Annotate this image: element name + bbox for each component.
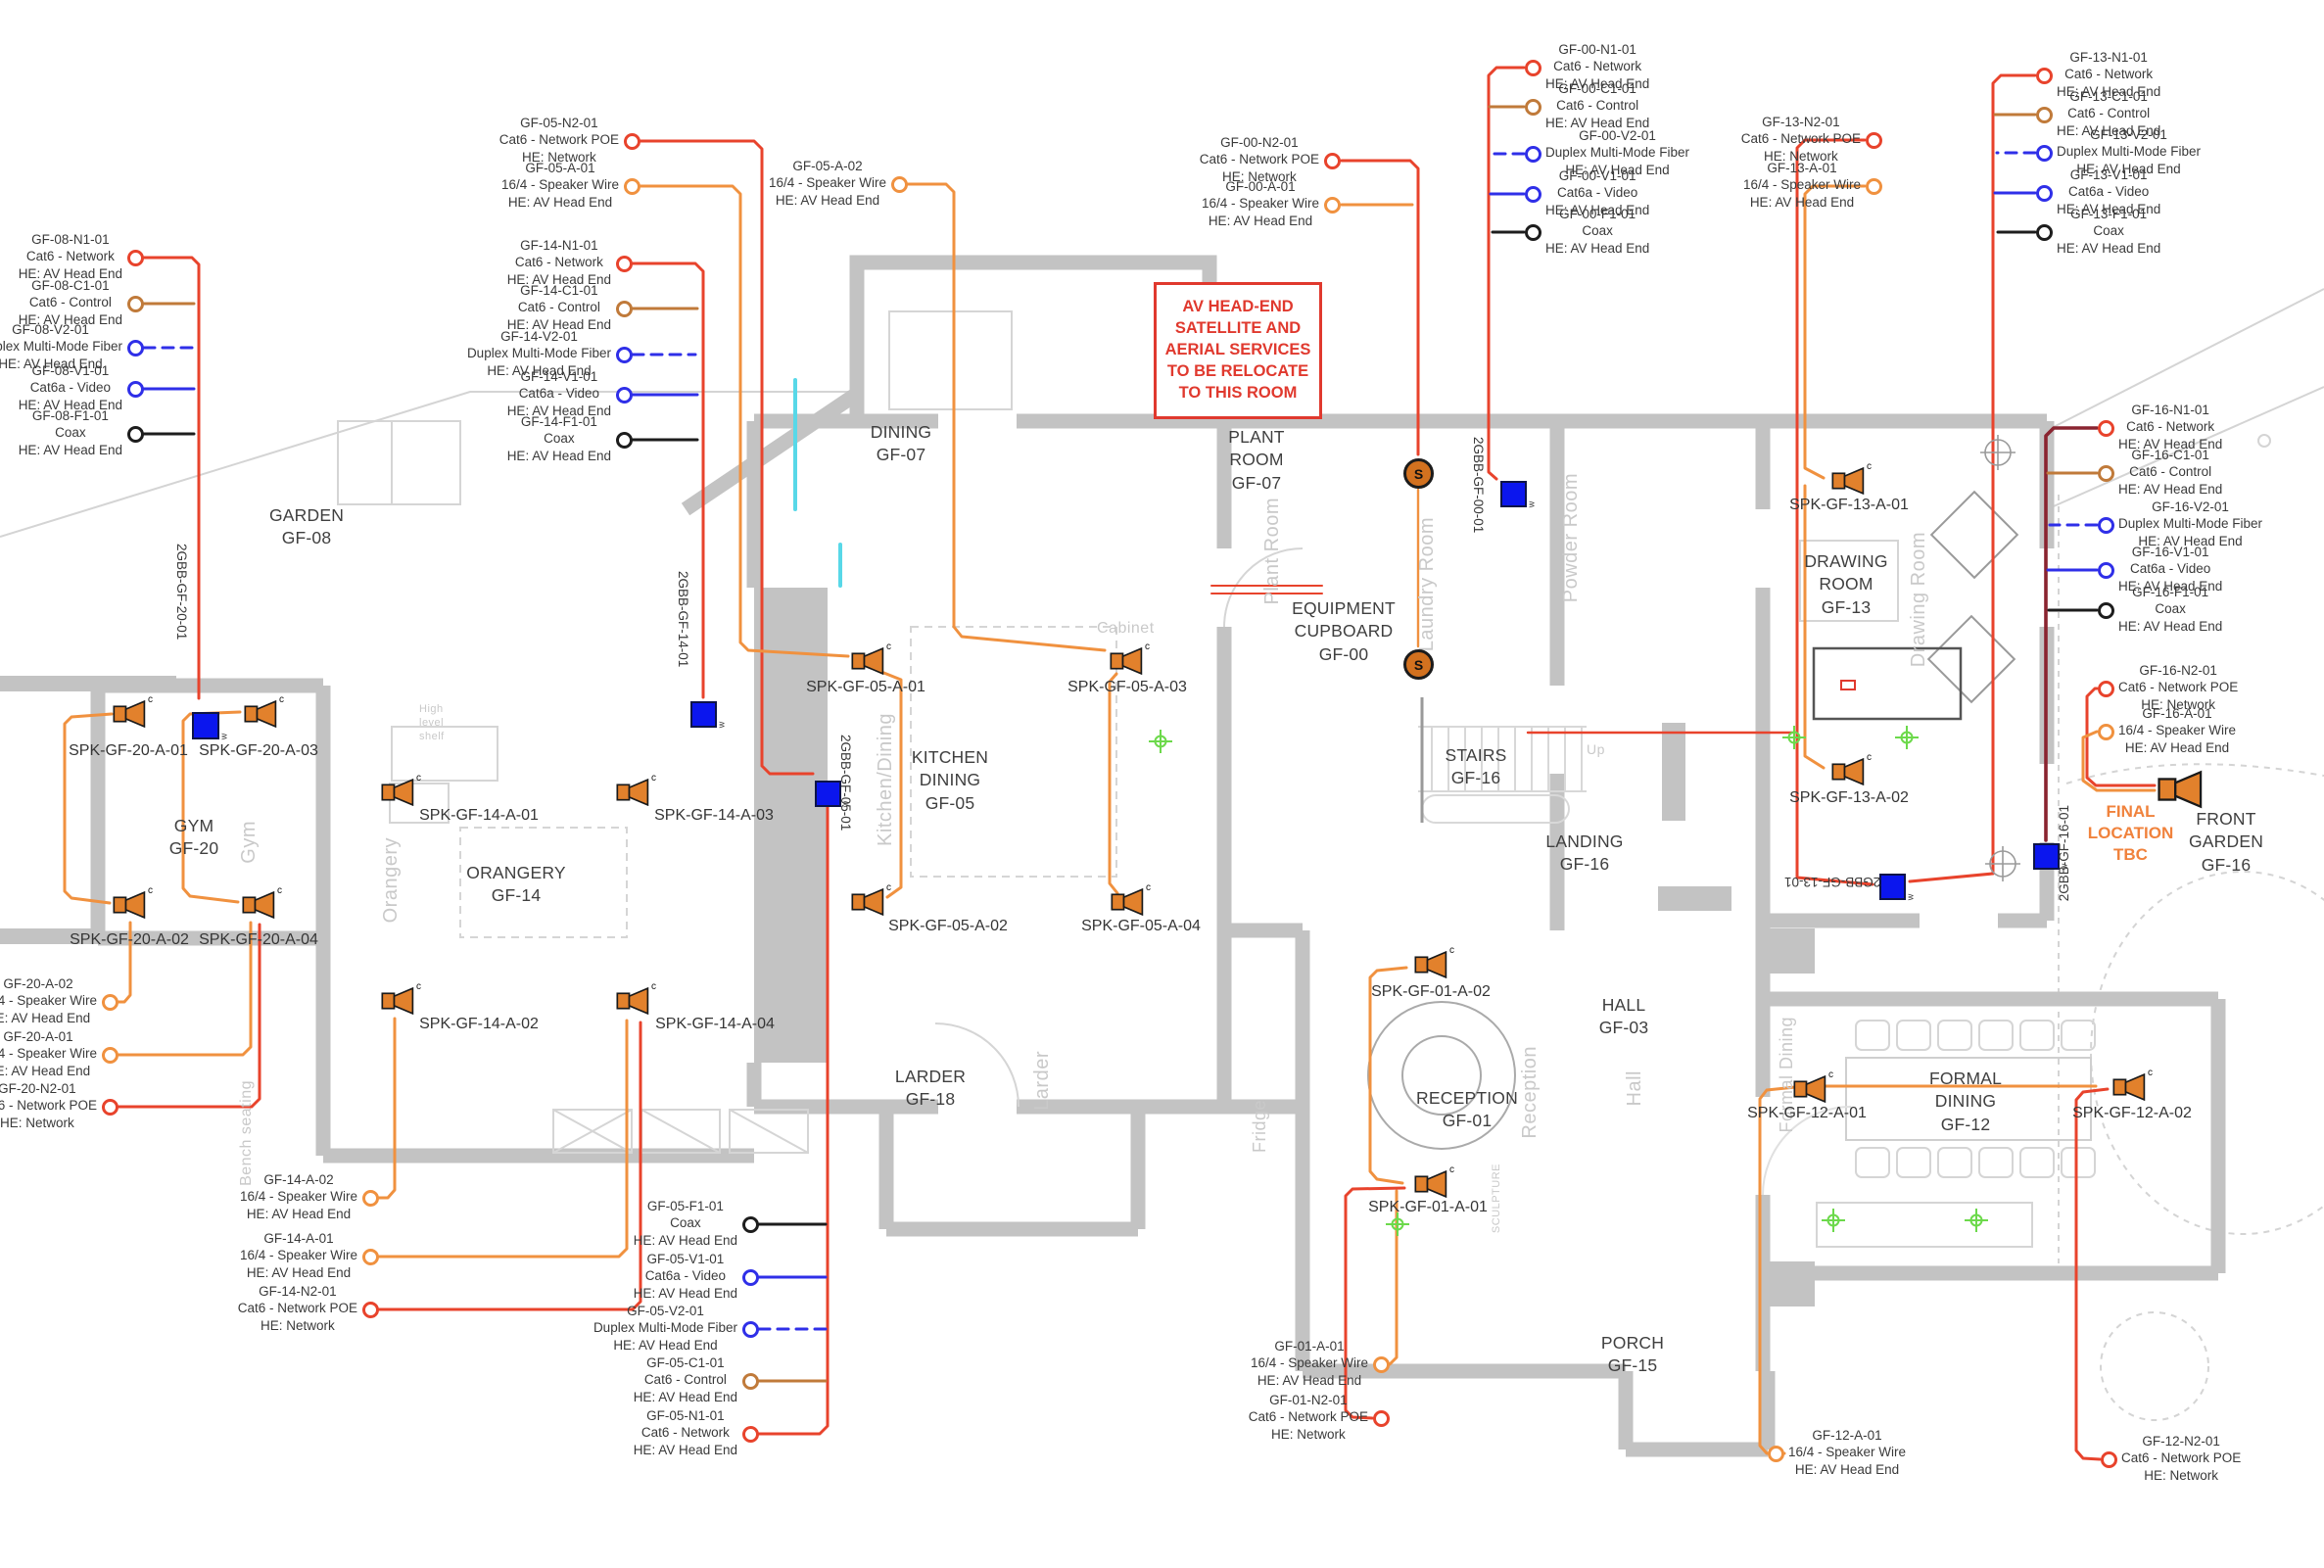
underlay-room-text: Fridge <box>1250 1100 1270 1153</box>
room-label-line: DINING <box>871 421 931 444</box>
cable-callout-cable: Duplex Multi-Mode Fiber <box>1545 144 1689 161</box>
cable-callout-id: GF-05-N1-01 <box>634 1407 737 1424</box>
room-label-line: RECEPTION <box>1416 1087 1518 1110</box>
cable-callout: GF-08-V1-01Cat6a - VideoHE: AV Head End <box>19 362 122 413</box>
cable-connector-node <box>1324 197 1341 214</box>
cable-callout-id: GF-14-C1-01 <box>507 282 611 299</box>
speaker-channel-mark: c <box>148 694 153 705</box>
cable-callout-dest: HE: AV Head End <box>2118 739 2236 756</box>
speaker-icon <box>851 647 884 680</box>
room-label-line: GF-01 <box>1416 1110 1518 1132</box>
cable-callout-cable: Cat6 - Network POE <box>1741 130 1861 147</box>
cable-callout-id: GF-01-N2-01 <box>1249 1392 1368 1408</box>
relocation-note-line: AV HEAD-END <box>1164 297 1311 318</box>
cable-callout-cable: Cat6 - Control <box>507 299 611 315</box>
room-label-line: PLANT <box>1228 426 1284 449</box>
cable-callout-id: GF-05-F1-01 <box>634 1198 737 1214</box>
cable-callout-cable: Cat6 - Network POE <box>1200 151 1319 167</box>
cable-connector-node <box>1866 132 1882 149</box>
room-label-line: GF-05 <box>912 792 988 815</box>
speaker-icon <box>1831 758 1865 790</box>
cable-callout-cable: 16/4 - Speaker Wire <box>1788 1444 1906 1460</box>
cable-callout-id: GF-08-V2-01 <box>0 321 122 338</box>
riser-w-mark: w <box>218 734 228 740</box>
room-label-line: GF-07 <box>871 444 931 466</box>
cable-callout: GF-13-A-0116/4 - Speaker WireHE: AV Head… <box>1743 160 1861 211</box>
speaker-icon <box>2112 1073 2146 1106</box>
cable-callout-id: GF-05-C1-01 <box>634 1354 737 1371</box>
cable-connector-node <box>616 387 633 404</box>
cable-connector-node <box>2098 517 2114 534</box>
room-label: KITCHENDININGGF-05 <box>912 746 988 815</box>
cable-connector-node <box>2098 681 2114 697</box>
cable-callout-dest: HE: AV Head End <box>0 1063 97 1079</box>
room-label-line: GARDEN <box>2189 831 2263 853</box>
cable-callout-id: GF-00-N1-01 <box>1545 41 1649 58</box>
speaker-channel-mark: c <box>1867 752 1872 763</box>
cable-connector-node <box>127 340 144 356</box>
cable-callout-dest: HE: AV Head End <box>240 1264 357 1281</box>
speaker-channel-mark: c <box>416 773 421 784</box>
cable-callout: GF-08-N1-01Cat6 - NetworkHE: AV Head End <box>19 231 122 282</box>
cable-callout-dest: HE: AV Head End <box>634 1389 737 1405</box>
cable-callout-cable: Duplex Multi-Mode Fiber <box>467 345 611 361</box>
underlay-room-text: Orangery <box>380 837 403 923</box>
cable-callout: GF-14-A-0116/4 - Speaker WireHE: AV Head… <box>240 1230 357 1281</box>
speaker-label: SPK-GF-20-A-03 <box>199 742 318 760</box>
riser-w-mark: w <box>1526 501 1536 508</box>
cable-connector-node <box>2036 185 2053 202</box>
cable-connector-node <box>624 178 640 195</box>
underlay-room-text: SCULPTURE <box>1491 1164 1502 1233</box>
room-label: LARDERGF-18 <box>895 1066 966 1112</box>
speaker-label: SPK-GF-14-A-04 <box>655 1016 775 1033</box>
cable-callout-cable: Duplex Multi-Mode Fiber <box>2118 515 2262 532</box>
cable-callout: GF-12-A-0116/4 - Speaker WireHE: AV Head… <box>1788 1427 1906 1478</box>
cable-callout-id: GF-13-A-01 <box>1743 160 1861 176</box>
speaker-icon <box>242 891 275 924</box>
cable-callout-cable: Cat6 - Network POE <box>0 1097 97 1114</box>
room-label-line: KITCHEN <box>912 746 988 769</box>
room-label-line: DRAWING <box>1804 550 1887 573</box>
cable-callout-dest: HE: AV Head End <box>593 1337 737 1354</box>
speaker-channel-mark: c <box>279 694 284 705</box>
room-label-line: GF-07 <box>1228 472 1284 495</box>
room-label-line: DINING <box>912 769 988 791</box>
room-label: ORANGERYGF-14 <box>466 862 565 908</box>
cable-callout-id: GF-12-N2-01 <box>2121 1433 2241 1449</box>
cable-callout-id: GF-14-A-02 <box>240 1171 357 1188</box>
cable-callout: GF-05-A-0216/4 - Speaker WireHE: AV Head… <box>769 158 886 209</box>
cable-callout: GF-01-A-0116/4 - Speaker WireHE: AV Head… <box>1251 1338 1368 1389</box>
cable-callout-cable: Duplex Multi-Mode Fiber <box>0 338 122 355</box>
room-label: EQUIPMENTCUPBOARDGF-00 <box>1292 597 1396 666</box>
cable-callout-dest: HE: Network <box>1249 1426 1368 1443</box>
speaker-channel-mark: c <box>1828 1069 1833 1080</box>
speaker-icon <box>1831 467 1865 499</box>
underlay-room-text: Bench seating <box>238 1080 256 1186</box>
cable-connector-node <box>742 1269 759 1286</box>
speaker-label: SPK-GF-13-A-01 <box>1789 497 1909 514</box>
speaker-label: SPK-GF-12-A-01 <box>1747 1105 1867 1122</box>
cable-connector-node <box>1525 99 1541 116</box>
cable-callout: GF-14-A-0216/4 - Speaker WireHE: AV Head… <box>240 1171 357 1222</box>
cable-callout: GF-08-F1-01CoaxHE: AV Head End <box>19 407 122 458</box>
cable-callout-id: GF-20-A-02 <box>0 975 97 992</box>
cable-callout-dest: HE: Network <box>0 1115 97 1131</box>
speaker-label: SPK-GF-20-A-01 <box>69 742 188 760</box>
cable-connector-node <box>362 1302 379 1318</box>
speaker-icon <box>851 888 884 921</box>
room-label-line: PORCH <box>1601 1332 1664 1354</box>
cable-callout-id: GF-00-N2-01 <box>1200 134 1319 151</box>
speaker-channel-mark: c <box>277 885 282 896</box>
speaker-icon <box>381 987 414 1020</box>
cable-callout-id: GF-13-V1-01 <box>2057 166 2160 183</box>
room-label-line: ROOM <box>1228 449 1284 471</box>
room-label-line: GF-13 <box>1804 596 1887 619</box>
cable-callout-cable: 16/4 - Speaker Wire <box>1202 195 1319 212</box>
room-label: PORCHGF-15 <box>1601 1332 1664 1378</box>
network-riser-box <box>1500 481 1527 507</box>
speaker-channel-mark: c <box>886 882 891 893</box>
speaker-channel-mark: c <box>651 981 656 992</box>
cable-callout: GF-00-A-0116/4 - Speaker WireHE: AV Head… <box>1202 178 1319 229</box>
room-label-line: GF-12 <box>1929 1114 2002 1136</box>
room-label: FORMALDININGGF-12 <box>1929 1068 2002 1136</box>
cable-callout-id: GF-16-F1-01 <box>2118 584 2222 600</box>
room-label-line: GF-15 <box>1601 1354 1664 1377</box>
cable-callout-cable: Cat6 - Network <box>507 254 611 270</box>
cable-callout-dest: HE: AV Head End <box>769 192 886 209</box>
cable-callout-dest: HE: AV Head End <box>19 442 122 458</box>
cable-callout: GF-20-A-0216/4 - Speaker WireHE: AV Head… <box>0 975 97 1026</box>
cable-callout: GF-05-N2-01Cat6 - Network POEHE: Network <box>499 115 619 166</box>
cable-callout-id: GF-13-N2-01 <box>1741 114 1861 130</box>
cable-callout-id: GF-14-N1-01 <box>507 237 611 254</box>
cable-callout-cable: 16/4 - Speaker Wire <box>1251 1354 1368 1371</box>
speaker-channel-mark: c <box>1145 641 1150 652</box>
cable-callout-id: GF-12-A-01 <box>1788 1427 1906 1444</box>
cable-callout-cable: Cat6 - Network POE <box>238 1300 357 1316</box>
room-label: HALLGF-03 <box>1599 994 1649 1040</box>
underlay-room-text: Kitchen/Dining <box>875 713 897 846</box>
underlay-room-text: Cabinet <box>1097 620 1155 638</box>
room-label-line: DINING <box>1929 1090 2002 1113</box>
cable-callout: GF-12-N2-01Cat6 - Network POEHE: Network <box>2121 1433 2241 1484</box>
cable-connector-node <box>127 426 144 443</box>
room-label: PLANTROOMGF-07 <box>1228 426 1284 495</box>
speaker-icon <box>1414 951 1447 983</box>
room-label-line: LANDING <box>1545 831 1623 853</box>
cable-callout-id: GF-08-N1-01 <box>19 231 122 248</box>
cable-callout-id: GF-14-F1-01 <box>507 413 611 430</box>
cable-callout-dest: HE: AV Head End <box>1743 194 1861 211</box>
cable-callout-cable: Cat6 - Network POE <box>2121 1449 2241 1466</box>
cable-callout-cable: Cat6 - Network <box>634 1424 737 1441</box>
cable-callout-id: GF-00-C1-01 <box>1545 80 1649 97</box>
final-location-line: TBC <box>2084 844 2177 866</box>
cable-callout: GF-05-N1-01Cat6 - NetworkHE: AV Head End <box>634 1407 737 1458</box>
cable-callout-dest: HE: Network <box>238 1317 357 1334</box>
speaker-icon <box>244 700 277 733</box>
cable-callout: GF-16-F1-01CoaxHE: AV Head End <box>2118 584 2222 635</box>
cable-callout-cable: 16/4 - Speaker Wire <box>240 1188 357 1205</box>
devices-layer: GARDENGF-08GYMGF-20ORANGERYGF-14KITCHEND… <box>0 0 2324 1568</box>
final-location-note: FINAL LOCATION TBC <box>2084 801 2177 866</box>
speaker-label: SPK-GF-14-A-03 <box>654 807 774 825</box>
cable-callout-id: GF-16-V2-01 <box>2118 499 2262 515</box>
cable-callout-dest: HE: AV Head End <box>2118 481 2222 498</box>
cable-callout-dest: HE: AV Head End <box>501 194 619 211</box>
cable-connector-node <box>2098 420 2114 437</box>
speaker-channel-mark: c <box>148 885 153 896</box>
cable-callout-cable: Coax <box>1545 222 1649 239</box>
cable-connector-node <box>2098 724 2114 740</box>
cable-callout: GF-00-F1-01CoaxHE: AV Head End <box>1545 206 1649 257</box>
cable-callout-cable: Cat6 - Control <box>19 294 122 310</box>
speaker-icon <box>381 779 414 811</box>
room-label: LANDINGGF-16 <box>1545 831 1623 877</box>
riser-label: 2GBB-GF-20-01 <box>174 544 189 640</box>
cable-callout-cable: Coax <box>507 430 611 447</box>
cable-callout-id: GF-01-A-01 <box>1251 1338 1368 1354</box>
cable-connector-node <box>616 301 633 317</box>
cable-callout-id: GF-08-F1-01 <box>19 407 122 424</box>
cable-callout: GF-01-N2-01Cat6 - Network POEHE: Network <box>1249 1392 1368 1443</box>
room-label: DRAWINGROOMGF-13 <box>1804 550 1887 619</box>
cable-connector-node <box>2036 145 2053 162</box>
cable-connector-node <box>742 1426 759 1443</box>
cable-callout-dest: HE: AV Head End <box>1202 213 1319 229</box>
relocation-note-line: TO BE RELOCATE <box>1164 361 1311 383</box>
cable-connector-node <box>891 176 908 193</box>
cable-callout: GF-00-C1-01Cat6 - ControlHE: AV Head End <box>1545 80 1649 131</box>
room-label-line: GF-18 <box>895 1088 966 1111</box>
riser-label: 2GBB-GF-14-01 <box>676 571 690 667</box>
room-label-line: STAIRS <box>1445 744 1506 767</box>
speaker-channel-mark: c <box>2148 1068 2153 1078</box>
cable-callout-id: GF-00-V1-01 <box>1545 167 1649 184</box>
cable-callout: GF-14-C1-01Cat6 - ControlHE: AV Head End <box>507 282 611 333</box>
cable-callout: GF-20-N2-01Cat6 - Network POEHE: Network <box>0 1080 97 1131</box>
cable-callout-cable: Cat6a - Video <box>507 385 611 402</box>
cable-callout-cable: Cat6 - Control <box>2057 105 2160 121</box>
cable-callout-cable: Cat6a - Video <box>2057 183 2160 200</box>
network-riser-box <box>192 712 219 739</box>
cable-connector-node <box>102 994 119 1011</box>
cable-callout-dest: HE: AV Head End <box>240 1206 357 1222</box>
speaker-channel-mark: c <box>651 773 656 784</box>
speaker-label: SPK-GF-01-A-01 <box>1368 1199 1488 1216</box>
underlay-room-text: Powder Room <box>1560 473 1583 602</box>
room-label-line: LARDER <box>895 1066 966 1088</box>
cable-callout-id: GF-08-V1-01 <box>19 362 122 379</box>
cable-callout-cable: Coax <box>2057 222 2160 239</box>
cable-connector-node <box>127 296 144 312</box>
cable-callout-dest: HE: AV Head End <box>2118 618 2222 635</box>
cable-callout-cable: Cat6 - Network POE <box>2118 679 2238 695</box>
cable-callout-dest: HE: AV Head End <box>1251 1372 1368 1389</box>
cable-callout-cable: Cat6 - Network POE <box>499 131 619 148</box>
cable-connector-node <box>1373 1410 1390 1427</box>
cable-callout-cable: Cat6 - Control <box>2118 463 2222 480</box>
cable-callout-id: GF-16-C1-01 <box>2118 447 2222 463</box>
speaker-label: SPK-GF-14-A-02 <box>419 1016 539 1033</box>
cable-callout-dest: HE: Network <box>2121 1467 2241 1484</box>
cable-connector-node <box>1525 224 1541 241</box>
cable-callout-dest: HE: AV Head End <box>634 1285 737 1302</box>
final-location-line: LOCATION <box>2084 823 2177 844</box>
cable-callout-cable: Cat6a - Video <box>2118 560 2222 577</box>
cable-connector-node <box>1768 1446 1784 1462</box>
cable-callout-id: GF-00-F1-01 <box>1545 206 1649 222</box>
cable-callout-cable: 16/4 - Speaker Wire <box>1743 176 1861 193</box>
cable-callout-cable: 16/4 - Speaker Wire <box>0 1045 97 1062</box>
cable-callout-dest: HE: AV Head End <box>1788 1461 1906 1478</box>
speaker-channel-mark: c <box>1449 1164 1454 1175</box>
cable-callout-cable: Cat6 - Network <box>19 248 122 264</box>
satellite-device-icon: S <box>1403 458 1434 489</box>
cable-callout-id: GF-14-N2-01 <box>238 1283 357 1300</box>
cable-callout: GF-16-C1-01Cat6 - ControlHE: AV Head End <box>2118 447 2222 498</box>
cable-connector-node <box>2036 224 2053 241</box>
cable-callout: GF-13-N2-01Cat6 - Network POEHE: Network <box>1741 114 1861 165</box>
speaker-label: SPK-GF-05-A-03 <box>1067 679 1187 696</box>
speaker-label: SPK-GF-13-A-02 <box>1789 789 1909 807</box>
speaker-label: SPK-GF-05-A-01 <box>806 679 925 696</box>
speaker-icon <box>616 779 649 811</box>
room-label-line: GF-16 <box>1545 853 1623 876</box>
cable-connector-node <box>2101 1451 2117 1468</box>
cable-callout-id: GF-16-N1-01 <box>2118 402 2222 418</box>
underlay-room-text: High level shelf <box>419 703 466 743</box>
room-label-line: GF-08 <box>269 527 344 549</box>
room-label-line: ROOM <box>1804 573 1887 595</box>
cable-callout-id: GF-20-A-01 <box>0 1028 97 1045</box>
cable-callout-cable: Coax <box>19 424 122 441</box>
cable-connector-node <box>362 1190 379 1207</box>
cable-callout-id: GF-13-F1-01 <box>2057 206 2160 222</box>
underlay-room-text: Hall <box>1624 1070 1646 1106</box>
underlay-room-text: Reception <box>1519 1046 1541 1139</box>
satellite-device-icon: S <box>1403 649 1434 680</box>
speaker-channel-mark: c <box>1146 882 1151 893</box>
cable-callout-id: GF-00-A-01 <box>1202 178 1319 195</box>
room-label-line: GF-16 <box>1445 767 1506 789</box>
room-label: STAIRSGF-16 <box>1445 744 1506 790</box>
riser-label: 2GBB-GF-05-01 <box>838 735 853 831</box>
cable-callout-cable: Cat6 - Network <box>2118 418 2222 435</box>
cable-callout-cable: Duplex Multi-Mode Fiber <box>2057 143 2201 160</box>
speaker-icon <box>1111 888 1144 921</box>
cable-callout: GF-05-A-0116/4 - Speaker WireHE: AV Head… <box>501 160 619 211</box>
relocation-note-line: TO THIS ROOM <box>1164 383 1311 404</box>
room-label-line: HALL <box>1599 994 1649 1017</box>
cable-callout-id: GF-08-C1-01 <box>19 277 122 294</box>
cable-connector-node <box>616 347 633 363</box>
room-label: GARDENGF-08 <box>269 504 344 550</box>
underlay-room-text: Drawing Room <box>1908 532 1930 667</box>
cable-callout-id: GF-16-A-01 <box>2118 705 2236 722</box>
cable-callout: GF-05-C1-01Cat6 - ControlHE: AV Head End <box>634 1354 737 1405</box>
underlay-room-text: Laundry Room <box>1416 517 1439 651</box>
riser-label: 2GBB-GF-00-01 <box>1471 437 1486 533</box>
cable-connector-node <box>2098 465 2114 482</box>
room-label: DININGGF-07 <box>871 421 931 467</box>
cable-callout-id: GF-13-V2-01 <box>2057 126 2201 143</box>
cable-callout-id: GF-14-V1-01 <box>507 368 611 385</box>
underlay-room-text: Plant Room <box>1261 498 1284 605</box>
underlay-room-text: Up <box>1587 741 1605 757</box>
cable-callout-dest: HE: AV Head End <box>1545 240 1649 257</box>
speaker-icon <box>616 987 649 1020</box>
room-label-line: GF-16 <box>2189 854 2263 877</box>
speaker-label: SPK-GF-12-A-02 <box>2072 1105 2192 1122</box>
cable-callout-id: GF-05-A-02 <box>769 158 886 174</box>
cable-connector-node <box>2098 562 2114 579</box>
speaker-label: SPK-GF-05-A-04 <box>1081 918 1201 935</box>
cable-connector-node <box>1866 178 1882 195</box>
cable-callout: GF-05-V2-01Duplex Multi-Mode FiberHE: AV… <box>593 1303 737 1354</box>
cable-callout-cable: Cat6a - Video <box>1545 184 1649 201</box>
speaker-label: SPK-GF-01-A-02 <box>1371 983 1491 1001</box>
cable-callout-dest: HE: AV Head End <box>634 1232 737 1249</box>
cable-callout-id: GF-14-A-01 <box>240 1230 357 1247</box>
cable-callout-cable: 16/4 - Speaker Wire <box>240 1247 357 1263</box>
cable-connector-node <box>742 1216 759 1233</box>
cable-connector-node <box>2098 602 2114 619</box>
cable-callout: GF-14-F1-01CoaxHE: AV Head End <box>507 413 611 464</box>
cable-connector-node <box>1324 153 1341 169</box>
room-label-line: GYM <box>169 815 219 837</box>
cable-callout-cable: Cat6a - Video <box>634 1267 737 1284</box>
cable-connector-node <box>102 1047 119 1064</box>
speaker-channel-mark: c <box>1867 461 1872 472</box>
cable-callout-dest: HE: AV Head End <box>634 1442 737 1458</box>
cable-connector-node <box>1525 146 1541 163</box>
cable-callout: GF-13-F1-01CoaxHE: AV Head End <box>2057 206 2160 257</box>
cable-connector-node <box>742 1373 759 1390</box>
cable-callout: GF-05-F1-01CoaxHE: AV Head End <box>634 1198 737 1249</box>
relocation-note-line: SATELLITE AND <box>1164 318 1311 340</box>
speaker-label: SPK-GF-20-A-04 <box>199 931 318 949</box>
cable-callout-id: GF-16-N2-01 <box>2118 662 2238 679</box>
riser-label: 2GBB-GF-13-01 <box>1784 875 1880 889</box>
cable-callout-id: GF-05-V2-01 <box>593 1303 737 1319</box>
cable-connector-node <box>362 1249 379 1265</box>
speaker-label: SPK-GF-05-A-02 <box>888 918 1008 935</box>
cable-connector-node <box>127 250 144 266</box>
cable-callout-cable: 16/4 - Speaker Wire <box>501 176 619 193</box>
underlay-room-text: Larder <box>1031 1051 1054 1111</box>
cable-callout: GF-16-A-0116/4 - Speaker WireHE: AV Head… <box>2118 705 2236 756</box>
room-label: GYMGF-20 <box>169 815 219 861</box>
cable-connector-node <box>127 381 144 398</box>
room-label-line: GF-00 <box>1292 643 1396 666</box>
cable-callout-id: GF-20-N2-01 <box>0 1080 97 1097</box>
cable-callout-cable: Duplex Multi-Mode Fiber <box>593 1319 737 1336</box>
cable-callout-cable: Cat6 - Control <box>634 1371 737 1388</box>
room-label-line: GF-14 <box>466 884 565 907</box>
cable-callout-cable: Cat6 - Control <box>1545 97 1649 114</box>
underlay-room-text: Gym <box>238 821 261 864</box>
speaker-channel-mark: c <box>1449 945 1454 956</box>
cable-callout-id: GF-14-V2-01 <box>467 328 611 345</box>
cable-callout: GF-14-N1-01Cat6 - NetworkHE: AV Head End <box>507 237 611 288</box>
cable-callout-cable: 16/4 - Speaker Wire <box>2118 722 2236 738</box>
cable-callout: GF-20-A-0116/4 - Speaker WireHE: AV Head… <box>0 1028 97 1079</box>
